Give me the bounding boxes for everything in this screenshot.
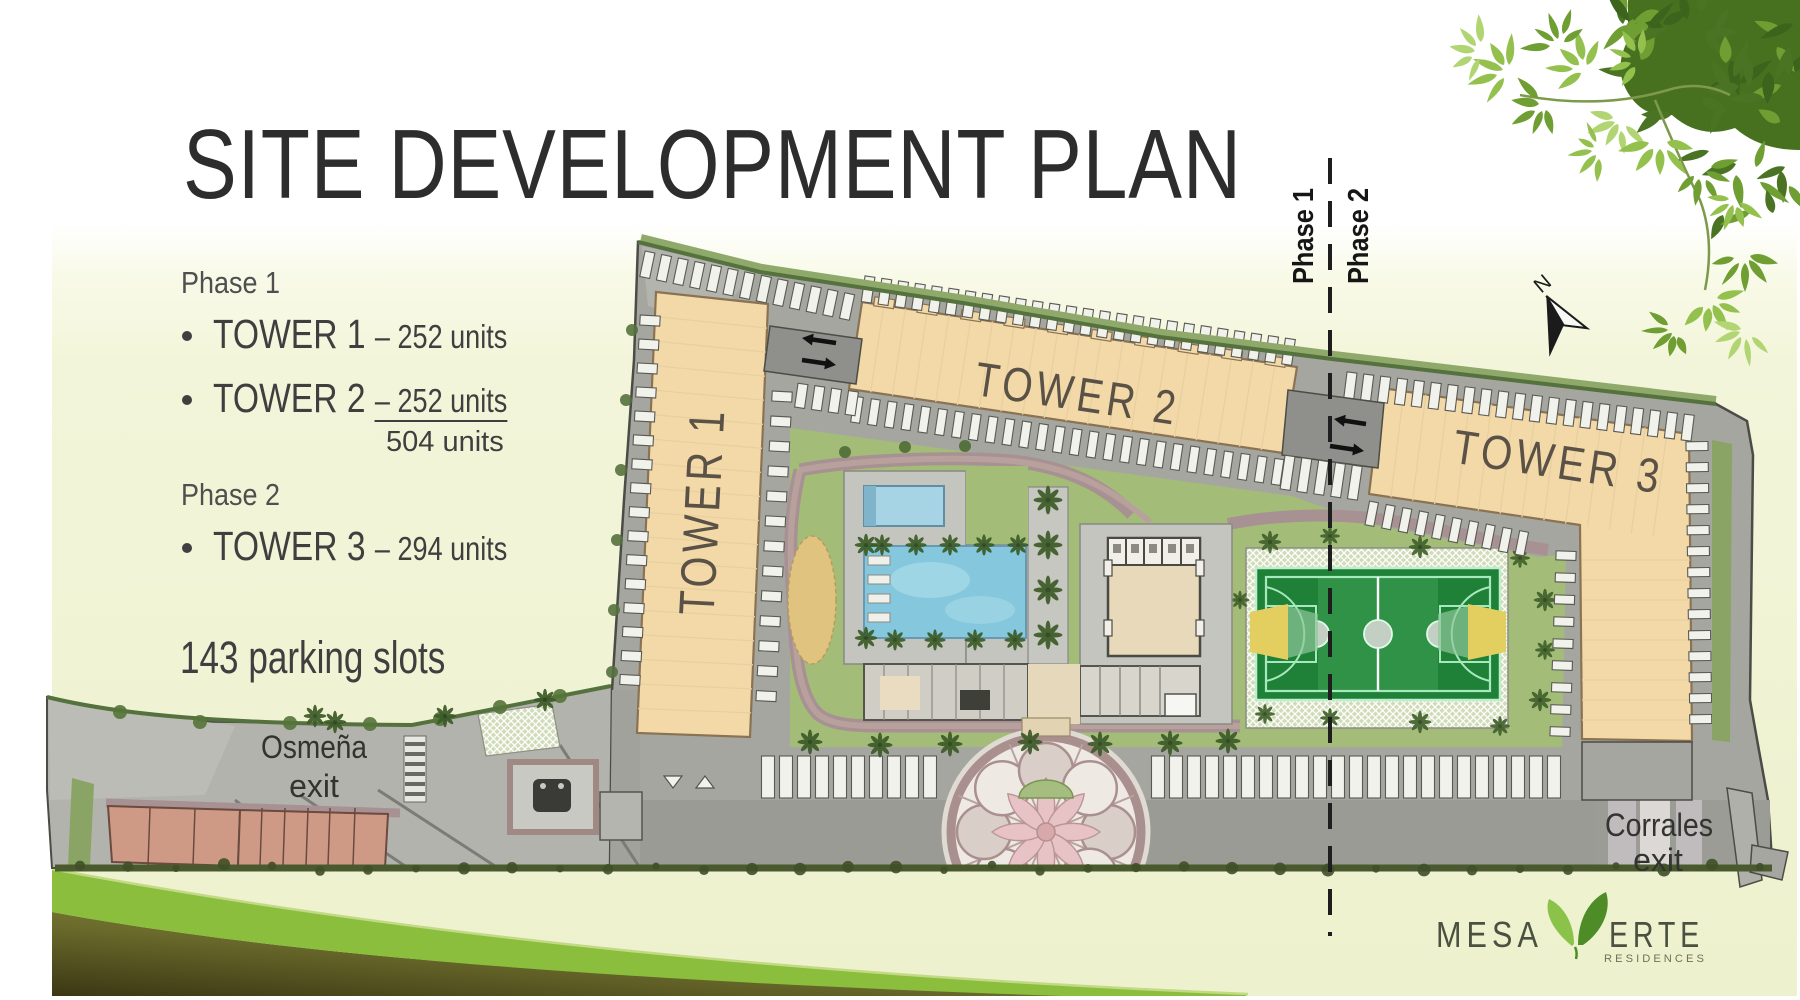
svg-text:Phase 2: Phase 2 [1343, 188, 1375, 284]
svg-text:ERTE: ERTE [1609, 914, 1704, 955]
svg-text:MESA: MESA [1436, 914, 1543, 955]
svg-text:RESIDENCES: RESIDENCES [1604, 953, 1707, 965]
svg-text:Phase 1: Phase 1 [1288, 188, 1320, 284]
svg-text:TOWER 1: TOWER 1 [669, 406, 736, 617]
svg-text:Corrales: Corrales [1605, 807, 1713, 843]
svg-text:exit: exit [1633, 842, 1683, 878]
svg-text:Osmeña: Osmeña [261, 729, 367, 765]
svg-text:exit: exit [289, 768, 339, 804]
